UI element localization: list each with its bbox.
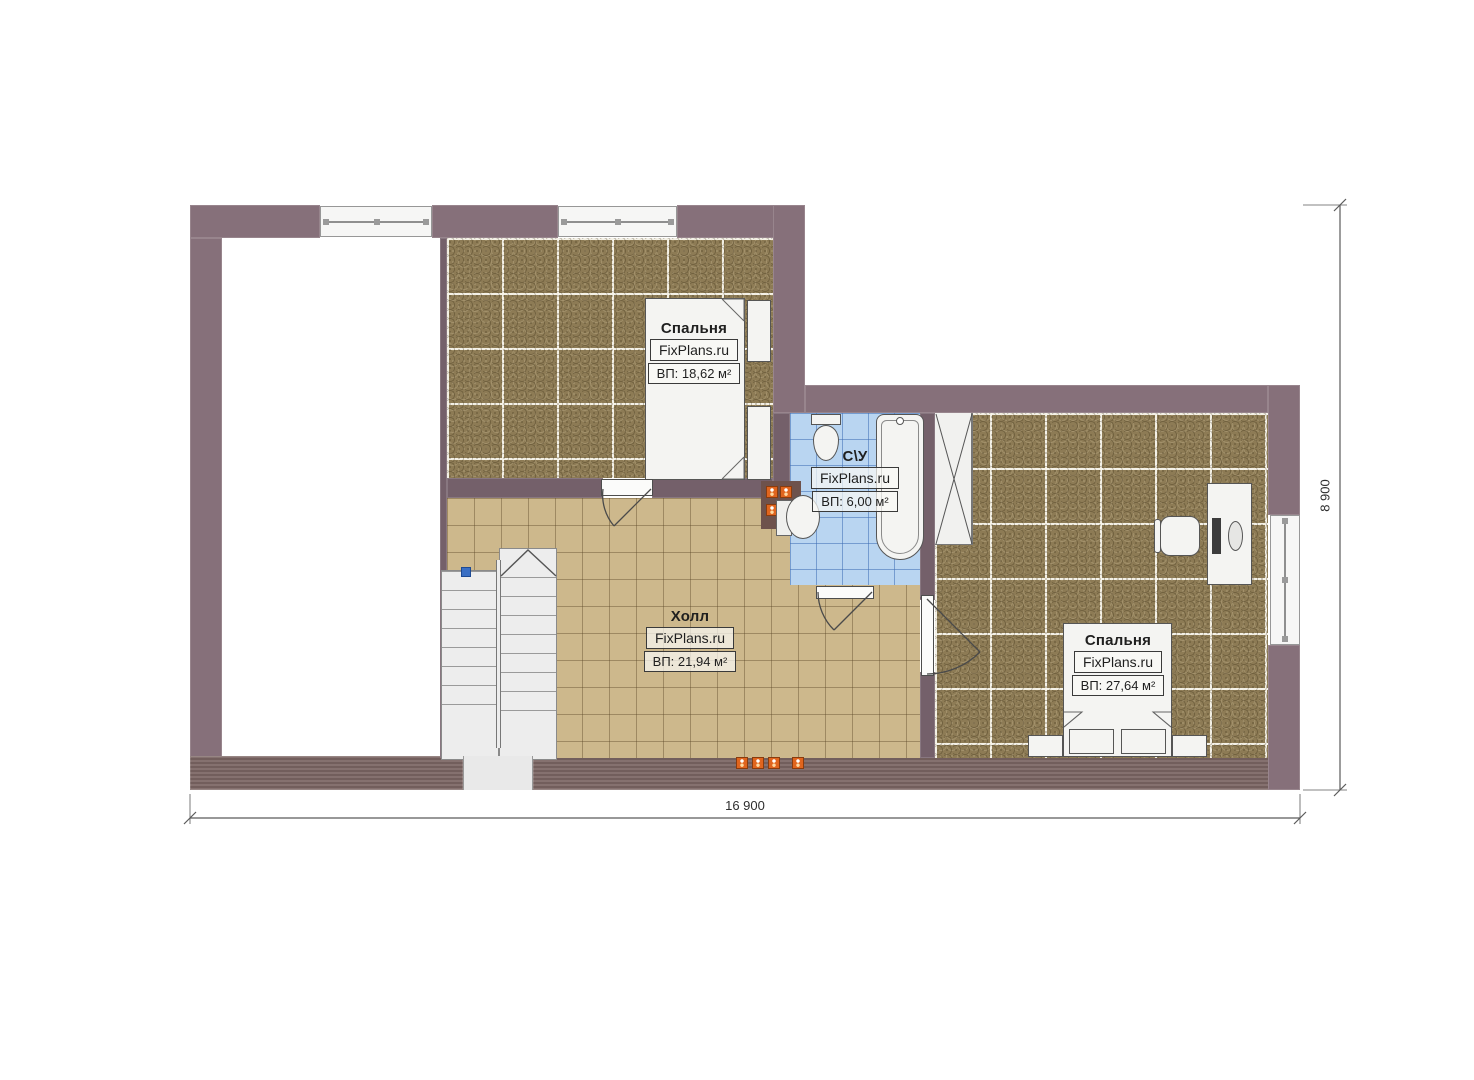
stair-steps [500, 577, 556, 721]
pillow [1121, 729, 1166, 754]
room-label-bedroom-2: Спальня FixPlans.ru ВП: 27,64 м² [1066, 632, 1170, 696]
room-area-value: ВП: 21,94 м² [644, 651, 737, 672]
window-tick [423, 219, 429, 225]
window-tick [1282, 518, 1288, 524]
outlet-icon [736, 757, 748, 769]
wall-segment [652, 478, 773, 498]
outlet-icon [768, 757, 780, 769]
window-tick [1282, 636, 1288, 642]
nightstand [747, 300, 771, 362]
height-dimension-label: 8 900 [1318, 466, 1333, 526]
wardrobe [935, 413, 973, 545]
window-tick [323, 219, 329, 225]
stair-section-marker [461, 567, 471, 577]
toilet-tank [811, 414, 841, 425]
wall-segment [190, 238, 222, 790]
wall-segment [190, 205, 320, 238]
brand-watermark: FixPlans.ru [646, 627, 734, 649]
outlet-icon [780, 486, 792, 498]
outlet-icon [766, 486, 778, 498]
stair-exit-landing [463, 756, 533, 790]
window-tick [668, 219, 674, 225]
window-tick [1282, 577, 1288, 583]
window [1270, 515, 1300, 645]
computer-monitor [1212, 518, 1221, 554]
room-area-value: ВП: 18,62 м² [648, 363, 741, 384]
wall-segment [920, 672, 935, 758]
room-label-bathroom: С\У FixPlans.ru ВП: 6,00 м² [800, 448, 910, 512]
wall-segment [190, 756, 463, 790]
wall-segment [447, 478, 603, 498]
room-area-value: ВП: 27,64 м² [1072, 675, 1165, 696]
room-label-bedroom-1: Спальня FixPlans.ru ВП: 18,62 м² [638, 320, 750, 384]
outlet-icon [752, 757, 764, 769]
open-room-floor [222, 238, 440, 756]
window [558, 206, 677, 237]
width-dimension-label: 16 900 [685, 798, 805, 813]
room-name: Холл [671, 608, 709, 625]
pillow [1069, 729, 1114, 754]
office-chair-back [1154, 519, 1161, 553]
wall-segment [773, 205, 805, 413]
room-area-value: ВП: 6,00 м² [812, 491, 897, 512]
window-tick [615, 219, 621, 225]
room-name: Спальня [661, 320, 727, 337]
window [320, 206, 432, 237]
keyboard [1228, 521, 1243, 551]
room-name: С\У [843, 448, 868, 465]
brand-watermark: FixPlans.ru [1074, 651, 1162, 673]
wall-segment [1268, 645, 1300, 790]
stair-divider [496, 560, 501, 748]
window-tick [374, 219, 380, 225]
wall-segment [533, 756, 1300, 790]
door [921, 595, 934, 676]
floor-plan-canvas: Спальня FixPlans.ru ВП: 18,62 м² С\У Fix… [0, 0, 1474, 1080]
nightstand [1028, 735, 1063, 757]
window-tick [561, 219, 567, 225]
room-name: Спальня [1085, 632, 1151, 649]
door [601, 479, 653, 496]
bathtub-faucet [896, 417, 904, 425]
outlet-icon [792, 757, 804, 769]
stair-steps [442, 571, 497, 721]
wall-segment [432, 205, 558, 238]
nightstand [1172, 735, 1207, 757]
office-chair [1160, 516, 1200, 556]
nightstand [747, 406, 771, 480]
door [816, 586, 874, 599]
brand-watermark: FixPlans.ru [811, 467, 899, 489]
wall-segment [1268, 385, 1300, 515]
wall-segment [805, 385, 1268, 413]
room-label-hall: Холл FixPlans.ru ВП: 21,94 м² [630, 608, 750, 672]
brand-watermark: FixPlans.ru [650, 339, 738, 361]
